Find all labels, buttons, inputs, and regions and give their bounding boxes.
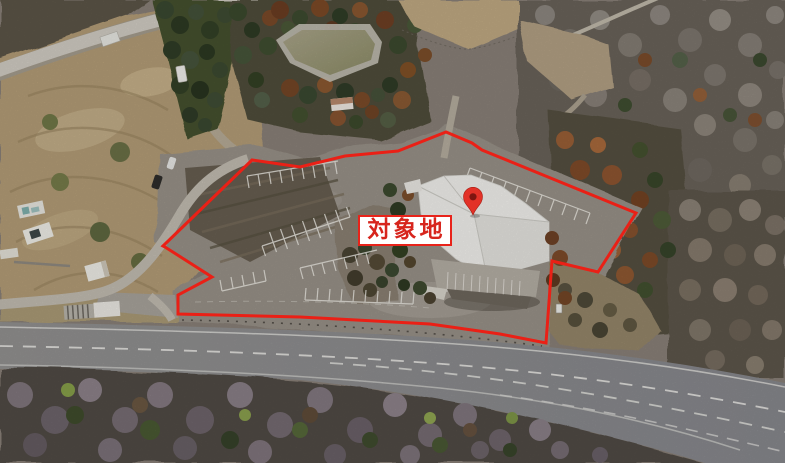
aerial-photo: 対象地 [0,0,785,463]
site-label: 対象地 [358,215,452,246]
